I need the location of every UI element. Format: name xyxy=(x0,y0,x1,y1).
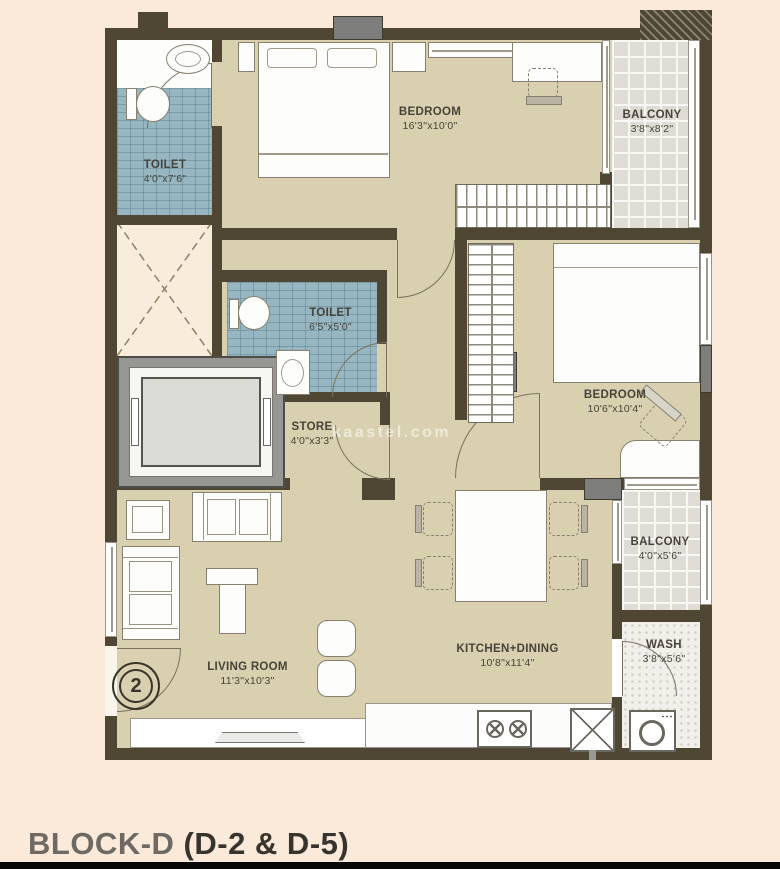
room-name: WASH xyxy=(624,638,704,653)
wall-balcony2-wash-divider xyxy=(612,610,712,622)
room-name: TOILET xyxy=(278,306,383,321)
nightstand-left xyxy=(238,42,255,72)
dining-table xyxy=(455,490,547,602)
wardrobe-bedroom1 xyxy=(455,184,611,228)
pouffe xyxy=(317,620,356,657)
bed-bedroom2 xyxy=(553,243,700,383)
unit-number-badge: 2 xyxy=(112,662,160,710)
window-glass-line xyxy=(706,258,708,341)
room-label-wash: WASH 3'8"x5'6" xyxy=(624,638,704,667)
ledge-top-right xyxy=(640,10,712,40)
window-living-left xyxy=(105,542,117,637)
wardrobe-line xyxy=(456,206,610,208)
chair-bedroom1 xyxy=(528,68,558,98)
room-label-balcony2: BALCONY 4'0"x5'6" xyxy=(620,535,700,564)
washbasin-toilet1 xyxy=(166,44,210,74)
washbasin-toilet2 xyxy=(276,350,310,395)
wall-toilet1-bottom xyxy=(105,215,222,225)
blanket-line xyxy=(259,153,388,155)
tv-icon xyxy=(215,732,305,743)
wall-void-right xyxy=(212,225,222,358)
railing-balcony2-right xyxy=(700,500,712,605)
room-label-bedroom2: BEDROOM 10'6"x10'4" xyxy=(545,388,685,417)
chair-back-bar xyxy=(581,559,588,587)
room-name: KITCHEN+DINING xyxy=(420,642,595,657)
wardrobe-bedroom2 xyxy=(468,243,514,423)
wc-bowl-toilet2 xyxy=(238,296,270,330)
room-label-living: LIVING ROOM 11'3"x10'3" xyxy=(170,660,325,689)
railing-line xyxy=(706,505,708,600)
floor-plan: TOILET 4'0"x7'6" BEDROOM 16'3"x10'0" BAL… xyxy=(0,0,780,869)
footer-divider xyxy=(0,862,780,869)
sofa-arm xyxy=(123,628,178,639)
room-label-toilet2: TOILET 6'5"x5'0" xyxy=(278,306,383,335)
column-top-bedroom1 xyxy=(333,16,383,40)
coffee-table-stem xyxy=(219,584,246,634)
basin-bowl xyxy=(175,51,201,67)
chair-back-bar xyxy=(415,505,422,533)
room-label-balcony1: BALCONY 3'8"x8'2" xyxy=(608,108,696,137)
wardrobe-line xyxy=(491,244,493,422)
wall-bedroom1-bottom-left xyxy=(222,228,397,240)
slider-line xyxy=(627,484,697,486)
side-table-inner xyxy=(132,506,163,533)
room-dims: 10'8"x11'4" xyxy=(420,657,595,671)
plan-title: BLOCK-D (D-2 & D-5) xyxy=(28,826,349,862)
room-name: BEDROOM xyxy=(545,388,685,403)
chair-back-bar xyxy=(581,505,588,533)
wc-bowl-toilet1 xyxy=(136,86,170,122)
room-dims: 4'0"x5'6" xyxy=(620,550,700,564)
chair-seat-bar xyxy=(526,96,562,105)
void-cross-lines xyxy=(117,222,212,356)
basin-bowl xyxy=(281,359,304,387)
sink-tap xyxy=(589,750,596,760)
slider-bedroom1-balcony1 xyxy=(602,40,610,174)
wall-toilet1-right-upper xyxy=(212,40,222,62)
chair-back-bar xyxy=(415,559,422,587)
room-dims: 16'3"x10'0" xyxy=(350,120,510,134)
room-name: LIVING ROOM xyxy=(170,660,325,675)
sofa-cushion xyxy=(129,594,172,625)
desk-bedroom2 xyxy=(620,440,700,478)
sofa-two-seat xyxy=(192,492,282,542)
sofa-arm xyxy=(193,493,204,540)
pillow xyxy=(327,48,377,68)
room-dims: 4'0"x7'6" xyxy=(117,173,213,187)
slider-line xyxy=(606,46,608,167)
wall-hall-stub xyxy=(362,478,395,500)
sofa-three-seat xyxy=(122,546,180,640)
pillow xyxy=(267,48,317,68)
wall-bedroom1-bottom-right xyxy=(455,228,712,240)
room-label-bedroom1: BEDROOM 16'3"x10'0" xyxy=(350,105,510,134)
window-glass-line xyxy=(617,503,619,560)
room-dims: 3'8"x8'2" xyxy=(608,123,696,137)
dining-chair xyxy=(549,502,579,536)
pillow-band xyxy=(554,244,698,268)
sofa-cushion xyxy=(129,561,172,592)
room-dims: 6'5"x5'0" xyxy=(278,321,383,335)
watermark-text: kaastel.com xyxy=(332,424,451,442)
wall-toilet1-right-lower xyxy=(212,126,222,225)
window-bedroom2-right xyxy=(700,253,712,345)
room-name: BALCONY xyxy=(620,535,700,550)
lift-guide-left xyxy=(131,398,139,446)
sofa-arm xyxy=(123,547,178,558)
washer-door xyxy=(639,720,665,746)
sofa-cushion xyxy=(207,499,236,535)
room-name: BEDROOM xyxy=(350,105,510,120)
room-name: BALCONY xyxy=(608,108,696,123)
column-top-left xyxy=(138,12,168,28)
dining-chair xyxy=(423,502,453,536)
sofa-arm xyxy=(270,493,281,540)
column-bedroom2-bottom xyxy=(584,478,622,500)
room-name: TOILET xyxy=(117,158,213,173)
burner-icon xyxy=(509,720,527,738)
sofa-cushion xyxy=(239,499,268,535)
room-label-toilet1: TOILET 4'0"x7'6" xyxy=(117,158,213,187)
burner-icon xyxy=(486,720,504,738)
window-glass-line xyxy=(111,547,113,633)
tv-unit-window xyxy=(130,718,367,748)
void-duct xyxy=(117,222,212,356)
room-dims: 10'6"x10'4" xyxy=(545,403,685,417)
washer-dots xyxy=(661,715,673,718)
column-right-wall xyxy=(700,345,712,393)
wall-toilet2-top xyxy=(217,270,387,282)
lift-cab xyxy=(141,377,261,467)
side-table xyxy=(126,500,170,540)
unit-number: 2 xyxy=(119,669,153,703)
unit-names: (D-2 & D-5) xyxy=(184,826,350,861)
dining-chair xyxy=(549,556,579,590)
coffee-table-top xyxy=(206,568,258,585)
stove xyxy=(477,710,532,748)
block-name: BLOCK-D xyxy=(28,826,174,861)
wall-top xyxy=(105,28,712,40)
washing-machine xyxy=(629,710,676,752)
wash-door-opening xyxy=(612,639,622,697)
room-label-kitchen: KITCHEN+DINING 10'8"x11'4" xyxy=(420,642,595,671)
dining-chair xyxy=(423,556,453,590)
room-dims: 11'3"x10'3" xyxy=(170,675,325,689)
slider-bedroom2-balcony2 xyxy=(624,478,700,490)
wall-bedroom2-left xyxy=(455,240,467,420)
kitchen-sink xyxy=(570,708,615,752)
nightstand-right xyxy=(392,42,426,72)
room-dims: 3'8"x5'6" xyxy=(624,653,704,667)
